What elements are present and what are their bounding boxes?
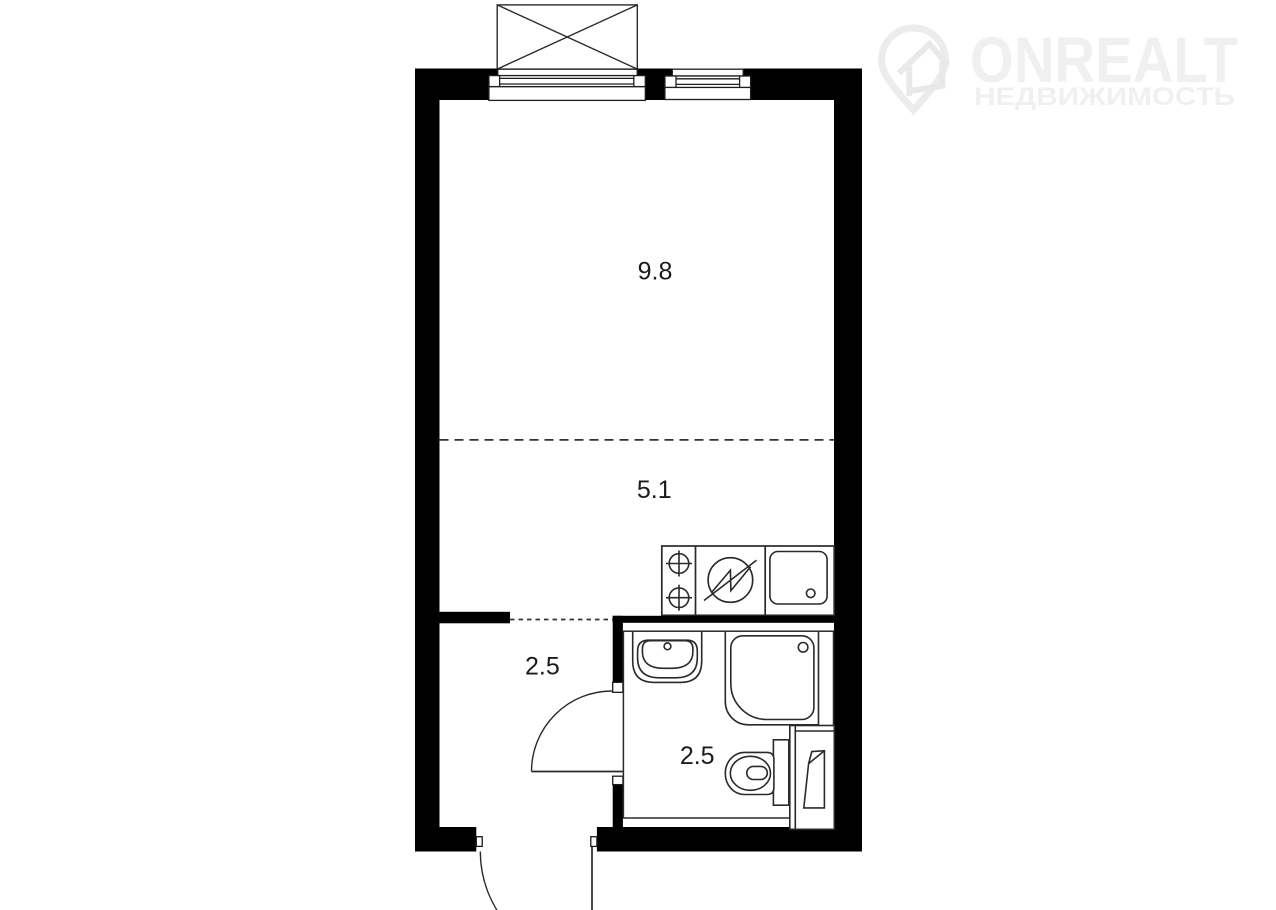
svg-text:2.5: 2.5 [525,652,560,680]
svg-text:5.1: 5.1 [637,476,672,504]
svg-text:НЕДВИЖИМОСТЬ: НЕДВИЖИМОСТЬ [974,83,1235,111]
svg-text:9.8: 9.8 [638,258,673,286]
svg-text:2.5: 2.5 [680,742,715,770]
